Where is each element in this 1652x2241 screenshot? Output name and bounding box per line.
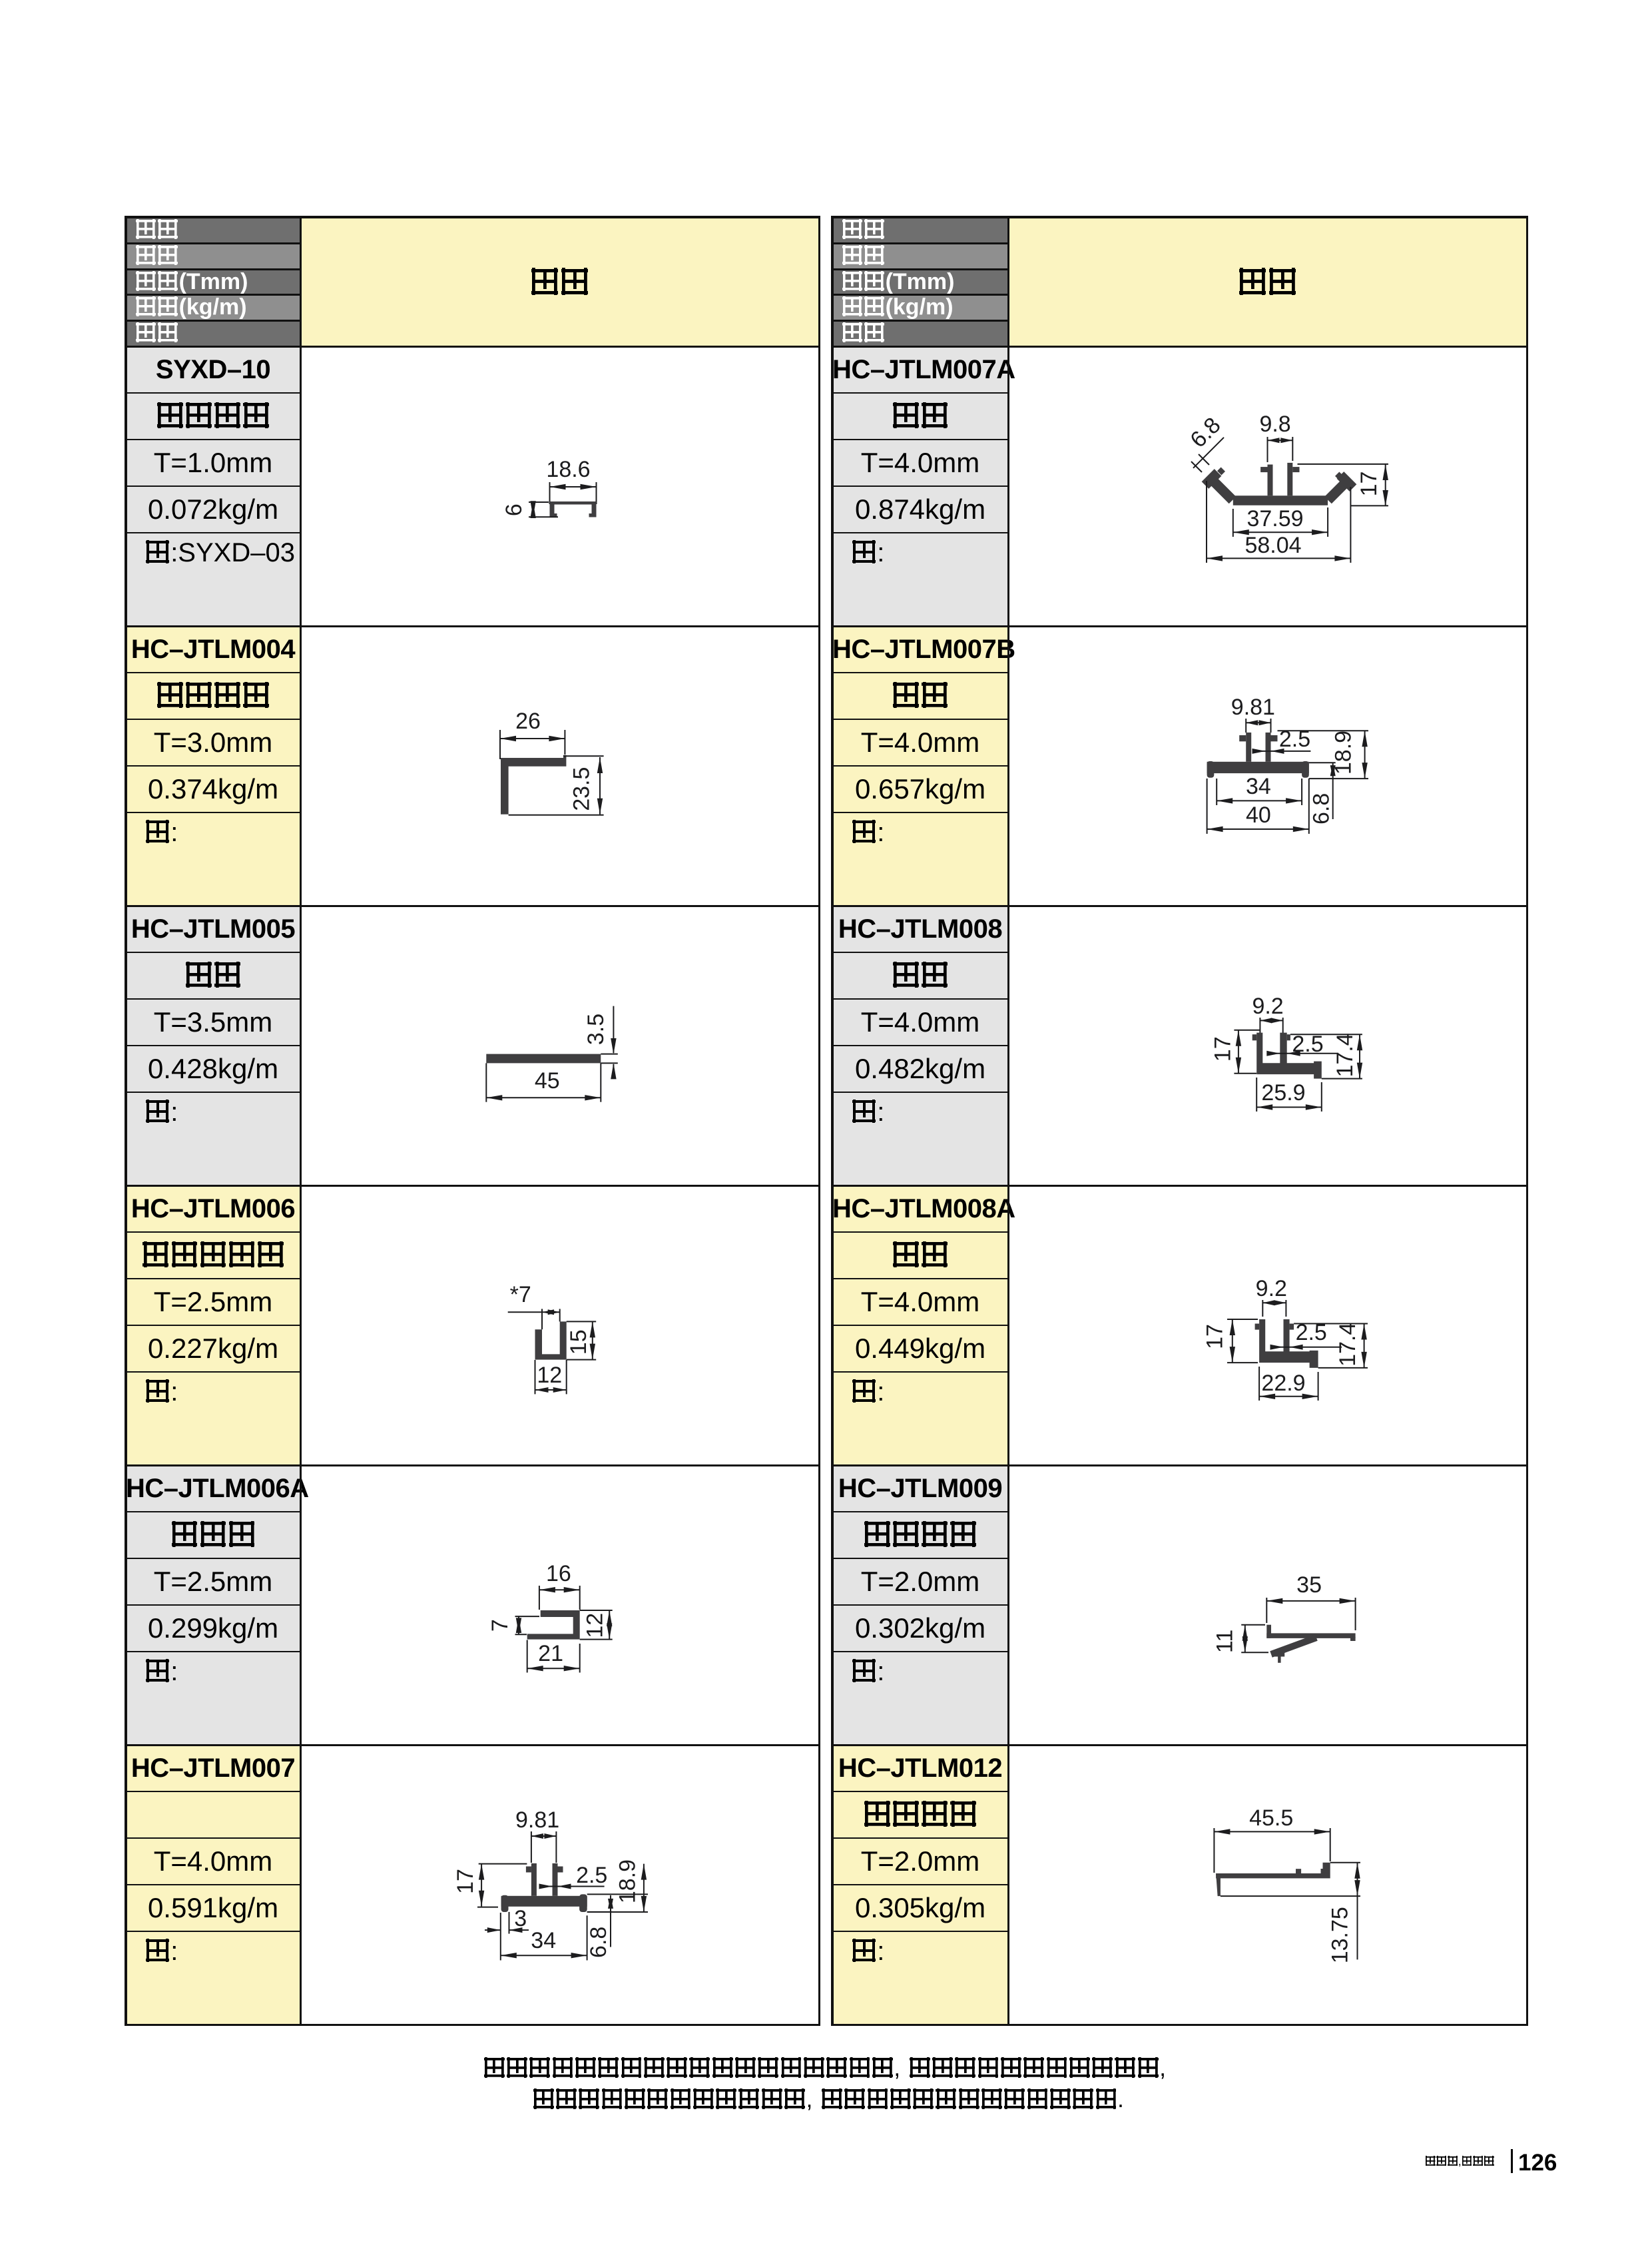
svg-text:9.2: 9.2 [1252,994,1283,1019]
svg-text:6: 6 [501,503,527,516]
svg-text:9.8: 9.8 [1259,412,1290,437]
svg-text:9.2: 9.2 [1256,1276,1287,1301]
svg-text:9.81: 9.81 [1231,695,1275,720]
svg-text:34: 34 [531,1928,556,1953]
svg-text:*7: *7 [510,1282,531,1307]
svg-text:15: 15 [566,1329,591,1355]
svg-text:7: 7 [487,1619,513,1632]
svg-text:12: 12 [537,1363,562,1388]
svg-text:45.5: 45.5 [1249,1805,1293,1831]
svg-text:18.9: 18.9 [1331,731,1356,775]
svg-text:16: 16 [546,1561,571,1586]
svg-text:45: 45 [535,1068,560,1094]
svg-text:6.8: 6.8 [1308,793,1334,824]
svg-text:11: 11 [1213,1630,1238,1653]
svg-text:2.5: 2.5 [576,1863,607,1888]
svg-text:13.75: 13.75 [1328,1907,1353,1963]
svg-text:9.81: 9.81 [515,1807,559,1833]
svg-text:17: 17 [1356,472,1382,497]
svg-text:25.9: 25.9 [1261,1080,1305,1106]
svg-text:17.4: 17.4 [1332,1033,1358,1077]
svg-text:21: 21 [538,1641,563,1666]
svg-text:34: 34 [1246,774,1271,799]
svg-text:3.5: 3.5 [583,1014,609,1045]
svg-text:6.8: 6.8 [1185,412,1225,452]
svg-text:18.9: 18.9 [615,1859,641,1903]
svg-text:37.59: 37.59 [1246,506,1303,531]
svg-text:26: 26 [515,709,541,734]
svg-text:17: 17 [453,1869,478,1894]
svg-text:3: 3 [514,1906,527,1931]
svg-text:12: 12 [582,1613,607,1638]
svg-text:17: 17 [1210,1036,1235,1062]
svg-text:35: 35 [1296,1572,1322,1598]
svg-text:17.4: 17.4 [1335,1323,1360,1367]
svg-text:6.8: 6.8 [586,1927,611,1958]
svg-text:40: 40 [1246,802,1271,828]
svg-text:23.5: 23.5 [569,767,595,811]
svg-text:17: 17 [1203,1324,1228,1349]
svg-text:22.9: 22.9 [1261,1371,1305,1396]
svg-text:58.04: 58.04 [1244,533,1301,558]
svg-text:18.6: 18.6 [546,457,590,482]
